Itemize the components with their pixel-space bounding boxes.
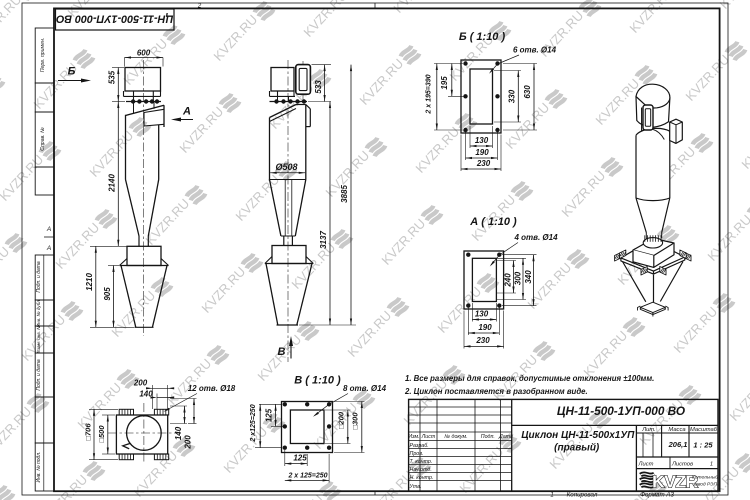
svg-text:340: 340 [524, 270, 533, 284]
svg-text:190: 190 [475, 148, 489, 157]
svg-text:2: 2 [197, 4, 202, 10]
svg-text:Подп.: Подп. [481, 434, 495, 440]
svg-text:А: А [182, 106, 191, 118]
svg-text:130: 130 [475, 136, 489, 145]
svg-text:2 х125=250: 2 х125=250 [250, 404, 257, 442]
svg-text:1. Все размеры для справок, до: 1. Все размеры для справок, допустимые о… [405, 374, 654, 383]
svg-text:□200: □200 [337, 411, 346, 429]
svg-text:533: 533 [314, 80, 323, 94]
svg-text:3885: 3885 [340, 185, 349, 203]
svg-text:Лист: Лист [638, 462, 654, 468]
svg-text:Листов: Листов [671, 462, 693, 468]
svg-text:Формат А3: Формат А3 [640, 492, 674, 499]
svg-text:Лит.: Лит. [641, 427, 656, 433]
svg-text:(правый): (правый) [554, 443, 600, 454]
svg-text:Ø508: Ø508 [275, 162, 297, 172]
svg-text:Разраб.: Разраб. [410, 443, 429, 449]
svg-text:А: А [46, 245, 51, 252]
svg-text:Масштаб: Масштаб [690, 427, 718, 433]
svg-text:Т. контр.: Т. контр. [410, 459, 433, 465]
svg-text:□500: □500 [97, 425, 106, 443]
svg-text:1 : 25: 1 : 25 [693, 441, 713, 450]
svg-text:Котельный: Котельный [692, 474, 718, 481]
svg-text:12 отв. Ø18: 12 отв. Ø18 [188, 384, 236, 393]
svg-text:140: 140 [139, 389, 153, 398]
svg-text:Пров.: Пров. [410, 451, 424, 457]
svg-text:□300: □300 [351, 412, 360, 430]
svg-text:Б: Б [68, 66, 76, 78]
svg-text:905: 905 [103, 287, 112, 301]
svg-text:Изм.: Изм. [408, 434, 419, 440]
svg-text:Справ. №: Справ. № [40, 127, 46, 151]
svg-text:200: 200 [184, 435, 193, 450]
svg-text:630: 630 [523, 85, 532, 99]
svg-text:230: 230 [476, 159, 491, 168]
svg-text:3137: 3137 [319, 231, 328, 249]
svg-text:125: 125 [293, 454, 307, 463]
svg-text:В: В [278, 346, 286, 358]
svg-text:2 х 125=250: 2 х 125=250 [287, 472, 327, 479]
svg-text:Н. контр.: Н. контр. [410, 475, 434, 481]
svg-text:1: 1 [550, 493, 553, 499]
svg-text:□706: □706 [83, 423, 92, 441]
svg-text:190: 190 [478, 323, 492, 332]
svg-text:330: 330 [507, 89, 516, 103]
svg-text:125: 125 [265, 408, 274, 422]
svg-text:2 х 195=390: 2 х 195=390 [426, 74, 433, 114]
svg-text:Лист: Лист [421, 434, 436, 440]
svg-text:Копировал: Копировал [567, 492, 598, 499]
svg-text:ЦН-11-500-1УП-000 ВО: ЦН-11-500-1УП-000 ВО [55, 13, 173, 25]
svg-text:А ( 1:10 ): А ( 1:10 ) [469, 216, 517, 228]
svg-text:Нач.отд.: Нач.отд. [410, 467, 432, 473]
svg-text:завод РЭП: завод РЭП [692, 482, 717, 488]
svg-text:Дата: Дата [498, 434, 513, 440]
svg-text:206,1: 206,1 [668, 440, 688, 449]
svg-text:300: 300 [514, 271, 523, 285]
svg-text:240: 240 [504, 273, 513, 288]
svg-text:Инв. № подл.: Инв. № подл. [36, 451, 42, 482]
svg-text:Подп. и дата: Подп. и дата [36, 261, 42, 293]
svg-text:Инв. № дубл.: Инв. № дубл. [36, 299, 41, 327]
svg-text:600: 600 [137, 48, 151, 57]
svg-text:Масса: Масса [668, 427, 686, 433]
svg-text:140: 140 [174, 426, 183, 440]
svg-text:Утв.: Утв. [410, 484, 422, 490]
svg-text:№ докум.: № докум. [444, 434, 467, 440]
svg-text:А: А [46, 226, 51, 233]
svg-text:6 отв. Ø14: 6 отв. Ø14 [513, 46, 557, 55]
svg-text:Перв. примен.: Перв. примен. [40, 38, 46, 72]
svg-text:Взам. инв. №: Взам. инв. № [36, 325, 41, 353]
svg-text:1210: 1210 [85, 273, 94, 291]
svg-text:ЦН-11-500-1УП-000 ВО: ЦН-11-500-1УП-000 ВО [557, 404, 685, 418]
svg-text:2. Циклон поставляется в разоб: 2. Циклон поставляется в разобранном вид… [404, 387, 588, 396]
svg-text:535: 535 [108, 70, 117, 84]
svg-text:130: 130 [475, 310, 489, 319]
svg-text:1: 1 [710, 462, 713, 468]
svg-text:KVZR: KVZR [652, 472, 699, 492]
svg-text:200: 200 [133, 379, 148, 388]
svg-text:Подп. и дата: Подп. и дата [36, 359, 42, 391]
svg-text:Циклон ЦН-11-500х1УП: Циклон ЦН-11-500х1УП [521, 430, 635, 441]
svg-text:8 отв. Ø14: 8 отв. Ø14 [343, 384, 387, 393]
svg-text:2140: 2140 [108, 174, 117, 193]
svg-text:230: 230 [475, 336, 490, 345]
svg-text:195: 195 [440, 76, 449, 90]
svg-text:В ( 1:10 ): В ( 1:10 ) [294, 375, 341, 387]
svg-text:4 отв. Ø14: 4 отв. Ø14 [513, 233, 558, 242]
svg-text:Б ( 1:10 ): Б ( 1:10 ) [459, 31, 506, 43]
